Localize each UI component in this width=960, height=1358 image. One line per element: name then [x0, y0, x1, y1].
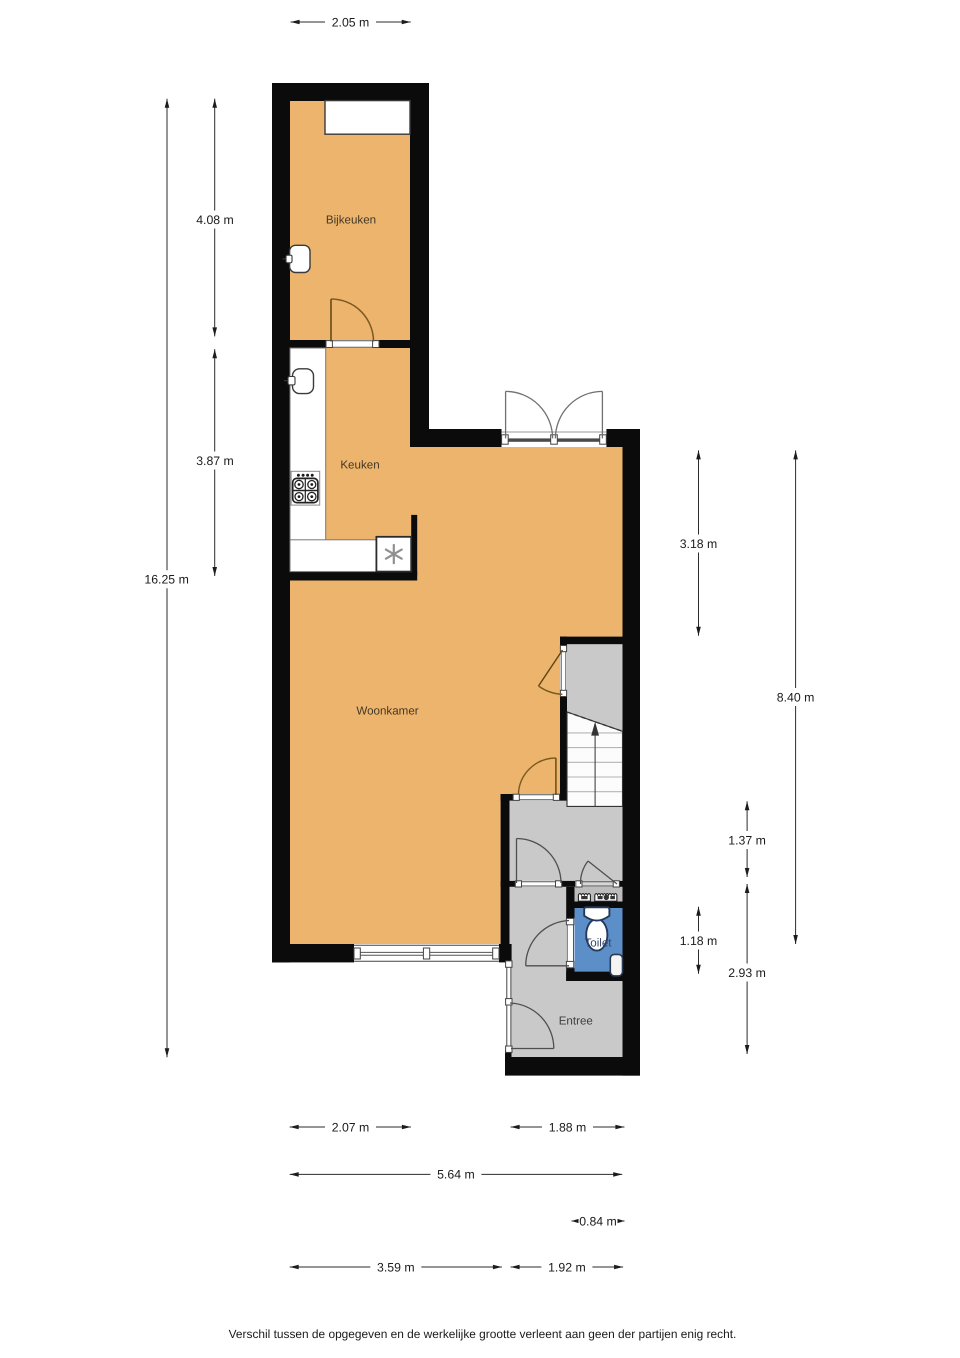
- svg-text:8.40 m: 8.40 m: [777, 690, 815, 704]
- svg-text:Verschil tussen de opgegeven e: Verschil tussen de opgegeven en de werke…: [229, 1327, 737, 1341]
- svg-text:Bijkeuken: Bijkeuken: [326, 213, 376, 226]
- svg-text:3.87 m: 3.87 m: [196, 454, 234, 468]
- svg-text:Keuken: Keuken: [340, 458, 379, 471]
- svg-text:1.18 m: 1.18 m: [680, 934, 718, 948]
- svg-text:Woonkamer: Woonkamer: [356, 704, 418, 717]
- svg-text:5.64 m: 5.64 m: [437, 1168, 475, 1182]
- svg-text:3.59 m: 3.59 m: [377, 1260, 415, 1274]
- svg-text:1.37 m: 1.37 m: [728, 833, 766, 847]
- svg-text:Entree: Entree: [559, 1014, 593, 1027]
- svg-text:1.92 m: 1.92 m: [548, 1260, 586, 1274]
- svg-text:1.88 m: 1.88 m: [549, 1120, 587, 1134]
- svg-text:16.25 m: 16.25 m: [144, 573, 188, 587]
- svg-text:2.93 m: 2.93 m: [728, 966, 766, 980]
- svg-text:Toilet: Toilet: [584, 936, 612, 949]
- svg-text:3.18 m: 3.18 m: [680, 537, 718, 551]
- svg-text:0.84 m: 0.84 m: [579, 1214, 617, 1228]
- svg-text:2.05 m: 2.05 m: [332, 15, 370, 29]
- svg-text:2.07 m: 2.07 m: [332, 1120, 370, 1134]
- svg-text:4.08 m: 4.08 m: [196, 213, 234, 227]
